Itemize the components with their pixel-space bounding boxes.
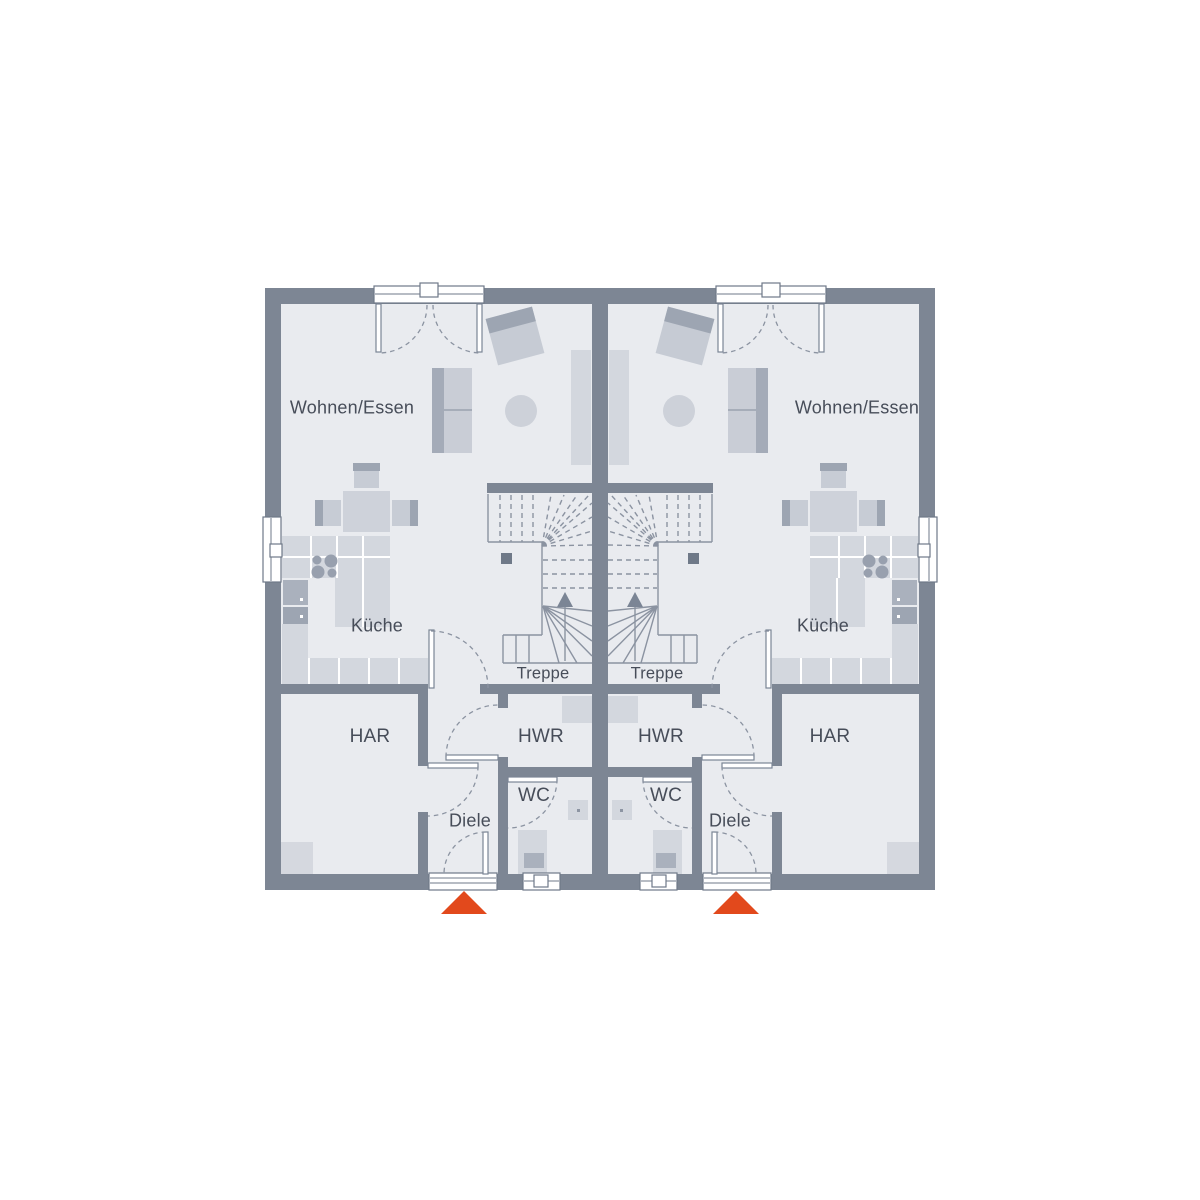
entrance-marker-right [713,891,759,914]
room-label-hall-right: Diele [709,811,751,832]
kitchen-door-right [712,630,771,688]
patio-door-mullion-right [762,283,780,297]
window-left-wall [263,517,282,582]
room-label-stairs-right: Treppe [631,665,684,684]
staircase-left [488,494,592,663]
room-label-wc-left: WC [518,785,550,807]
har-door-left [428,763,478,816]
kitchen-door-left [429,630,488,688]
entrance-door-left [429,832,497,890]
room-label-living-right: Wohnen/Essen [795,398,919,419]
wc-window-left [523,873,560,890]
har-door-right [722,763,772,816]
hwr-door-right [702,705,754,760]
patio-door-mullion-left [420,283,438,297]
room-label-har-left: HAR [350,726,391,748]
hwr-door-left [446,705,498,760]
stair-arrowhead-left [557,592,573,607]
room-label-living-left: Wohnen/Essen [290,398,414,419]
plan-linework [0,0,1200,1200]
cooktop-right [863,555,889,579]
cooktop-left [312,555,338,579]
patio-door-right [716,283,826,353]
wc-window-right [640,873,677,890]
room-label-hwr-right: HWR [638,726,684,748]
room-label-stairs-left: Treppe [517,665,570,684]
stair-arrowhead-right [627,592,643,607]
room-label-kitchen-left: Küche [351,616,403,637]
window-right-wall [918,517,937,582]
room-label-hall-left: Diele [449,811,491,832]
room-label-wc-right: WC [650,785,682,807]
stair-post-right [688,553,699,564]
stair-post-left [501,553,512,564]
room-label-kitchen-right: Küche [797,616,849,637]
entrance-marker-left [441,891,487,914]
room-label-har-right: HAR [810,726,851,748]
floor-plan: Wohnen/Essen Wohnen/Essen Küche Küche HA… [0,0,1200,1200]
room-label-hwr-left: HWR [518,726,564,748]
staircase-right [608,494,712,663]
patio-door-left [374,283,484,353]
entrance-door-right [703,832,771,890]
